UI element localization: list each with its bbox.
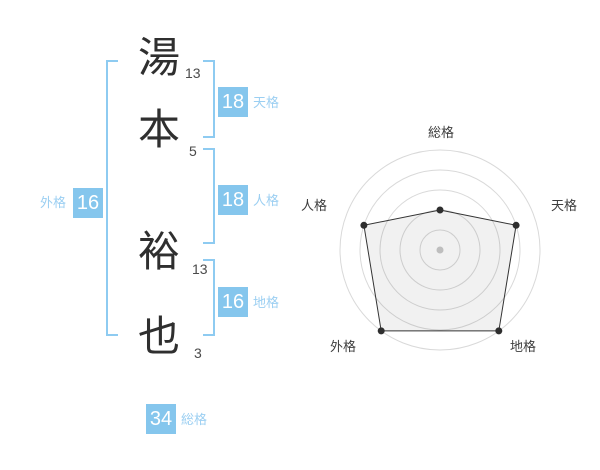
name-char-3: 裕 [136,231,182,273]
radar-axis-label-soukaku: 総格 [414,125,468,141]
jinkaku-score-badge: 18 [218,185,248,215]
jinkaku-bracket [203,148,215,244]
tenkaku-score-badge: 18 [218,87,248,117]
gaikaku-score-badge: 16 [73,188,103,218]
radar-data-polygon [364,210,516,331]
radar-data-point [437,207,444,214]
chikaku-label: 地格 [253,296,279,309]
name-char-2: 本 [136,109,182,151]
stroke-count-4: 3 [194,346,202,360]
radar-data-point [513,222,520,229]
radar-data-point [378,327,385,334]
gaikaku-label: 外格 [40,196,66,209]
soukaku-label: 総格 [181,413,207,426]
radar-data-point [495,327,502,334]
radar-data-point [360,222,367,229]
radar-axis-label-chikaku: 地格 [496,339,550,355]
jinkaku-label: 人格 [253,194,279,207]
stroke-count-1: 13 [185,66,201,80]
soukaku-score-badge: 34 [146,404,176,434]
tenkaku-label: 天格 [253,96,279,109]
radar-axis-label-tenkaku: 天格 [537,198,591,214]
tenkaku-bracket [203,60,215,138]
name-fortune-panel: 湯 本 裕 也 13 5 13 3 18 天格 18 人格 16 地格 外格 1… [0,0,600,470]
name-char-1: 湯 [136,37,182,79]
stroke-count-2: 5 [189,144,197,158]
radar-axis-label-jinkaku: 人格 [287,198,341,214]
gaikaku-bracket [106,60,118,336]
radar-axis-label-gaikaku: 外格 [316,339,370,355]
chikaku-bracket [203,259,215,336]
chikaku-score-badge: 16 [218,287,248,317]
name-char-4: 也 [136,316,182,358]
